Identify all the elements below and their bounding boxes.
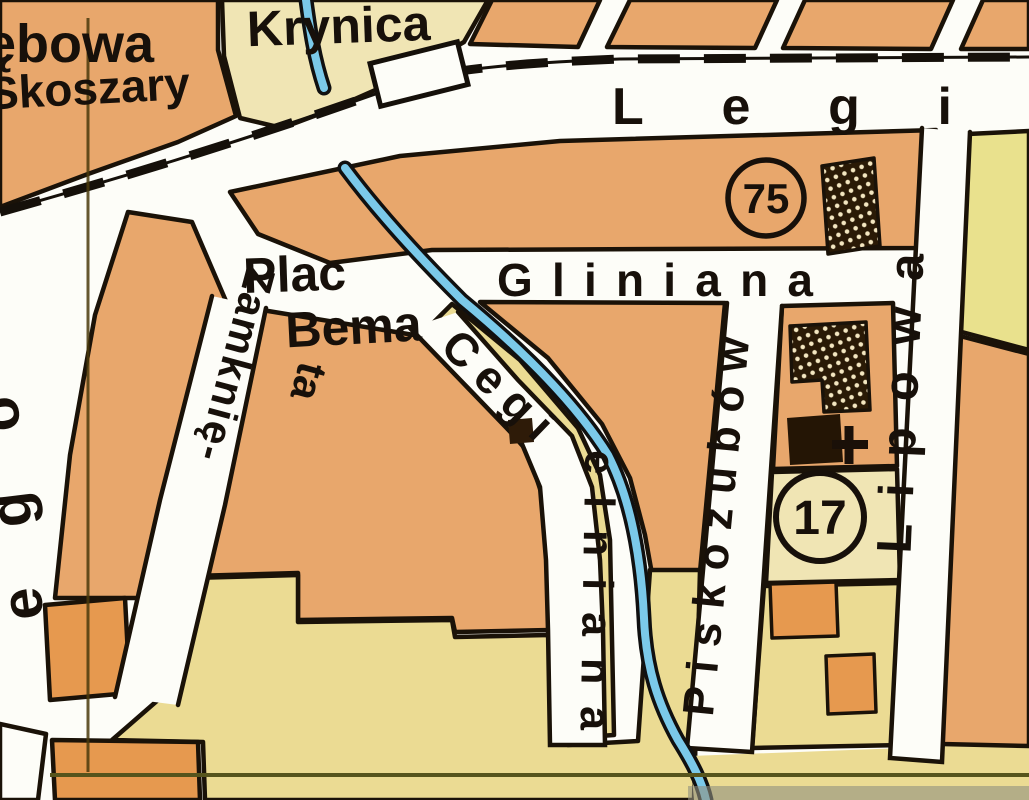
- city-map-canvas: 75 17 ębowa Krynica Skoszary Legi Plac B…: [0, 0, 1029, 800]
- block-north-3: [783, 0, 953, 49]
- label-legionow: Legi: [612, 78, 952, 136]
- route-badge-17: 17: [793, 492, 846, 545]
- label-krynica: Krynica: [246, 0, 432, 57]
- block-north-1: [470, 0, 600, 47]
- road-fragment-southwest: [0, 724, 46, 800]
- block-north-4: [961, 0, 1029, 49]
- block-small-orange-southwest: [52, 740, 200, 800]
- label-ego: ego: [0, 393, 57, 624]
- orange-building-2: [826, 654, 876, 714]
- church-building: [787, 414, 843, 465]
- label-gliniana: Gliniana: [497, 254, 813, 306]
- block-north-2: [607, 0, 777, 48]
- hatched-building-route75: [822, 158, 880, 254]
- label-bema: Bema: [284, 295, 424, 358]
- city-map-screenshot: 75 17 ębowa Krynica Skoszary Legi Plac B…: [0, 0, 1029, 800]
- label-skoszary: Skoszary: [0, 57, 192, 120]
- orange-building-1: [770, 582, 838, 638]
- route-badge-75: 75: [743, 175, 790, 222]
- scan-shadow-band: [688, 786, 1029, 800]
